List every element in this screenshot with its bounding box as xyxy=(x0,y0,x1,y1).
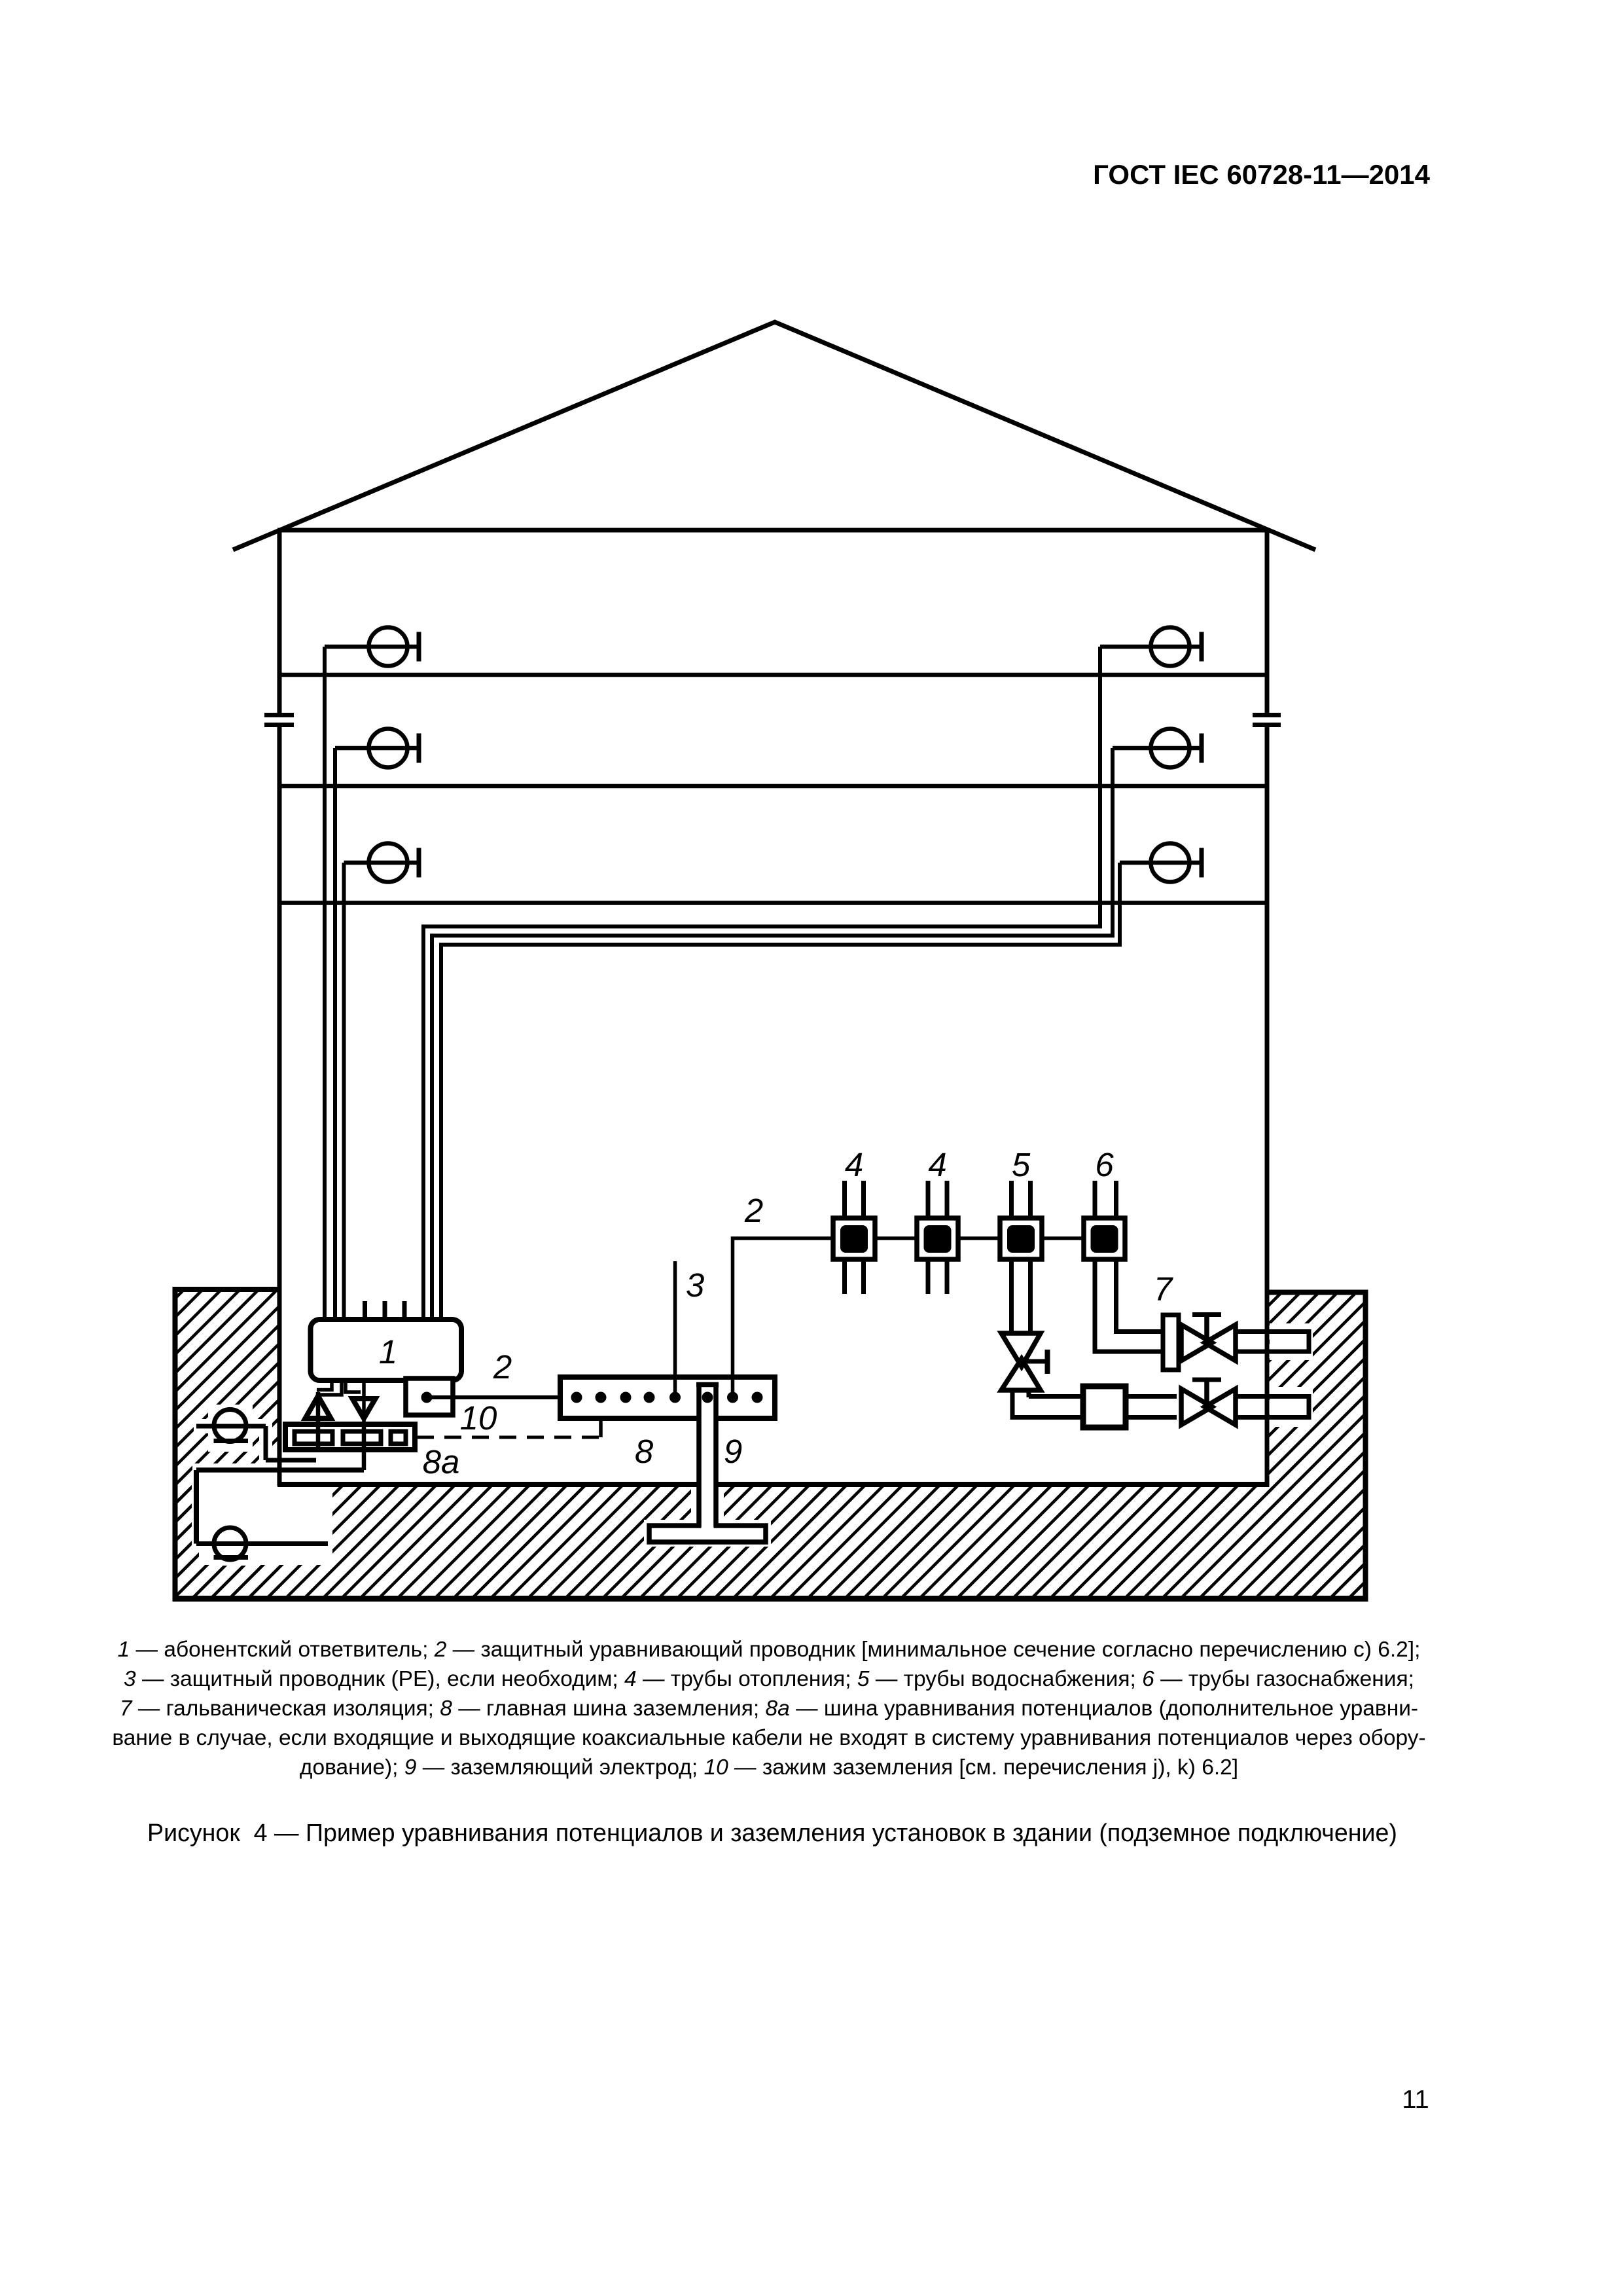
svg-text:4: 4 xyxy=(845,1146,863,1183)
svg-text:7: 7 xyxy=(1154,1270,1173,1308)
svg-text:8а: 8а xyxy=(423,1443,460,1480)
svg-text:6: 6 xyxy=(1095,1146,1114,1183)
svg-text:1: 1 xyxy=(379,1333,397,1371)
svg-text:9: 9 xyxy=(724,1433,742,1470)
svg-text:4: 4 xyxy=(928,1146,946,1183)
svg-text:2: 2 xyxy=(493,1348,512,1386)
svg-text:5: 5 xyxy=(1012,1146,1031,1183)
svg-text:10: 10 xyxy=(460,1399,497,1437)
svg-text:8: 8 xyxy=(635,1433,654,1470)
svg-text:3: 3 xyxy=(686,1266,704,1304)
svg-text:2: 2 xyxy=(744,1192,763,1229)
